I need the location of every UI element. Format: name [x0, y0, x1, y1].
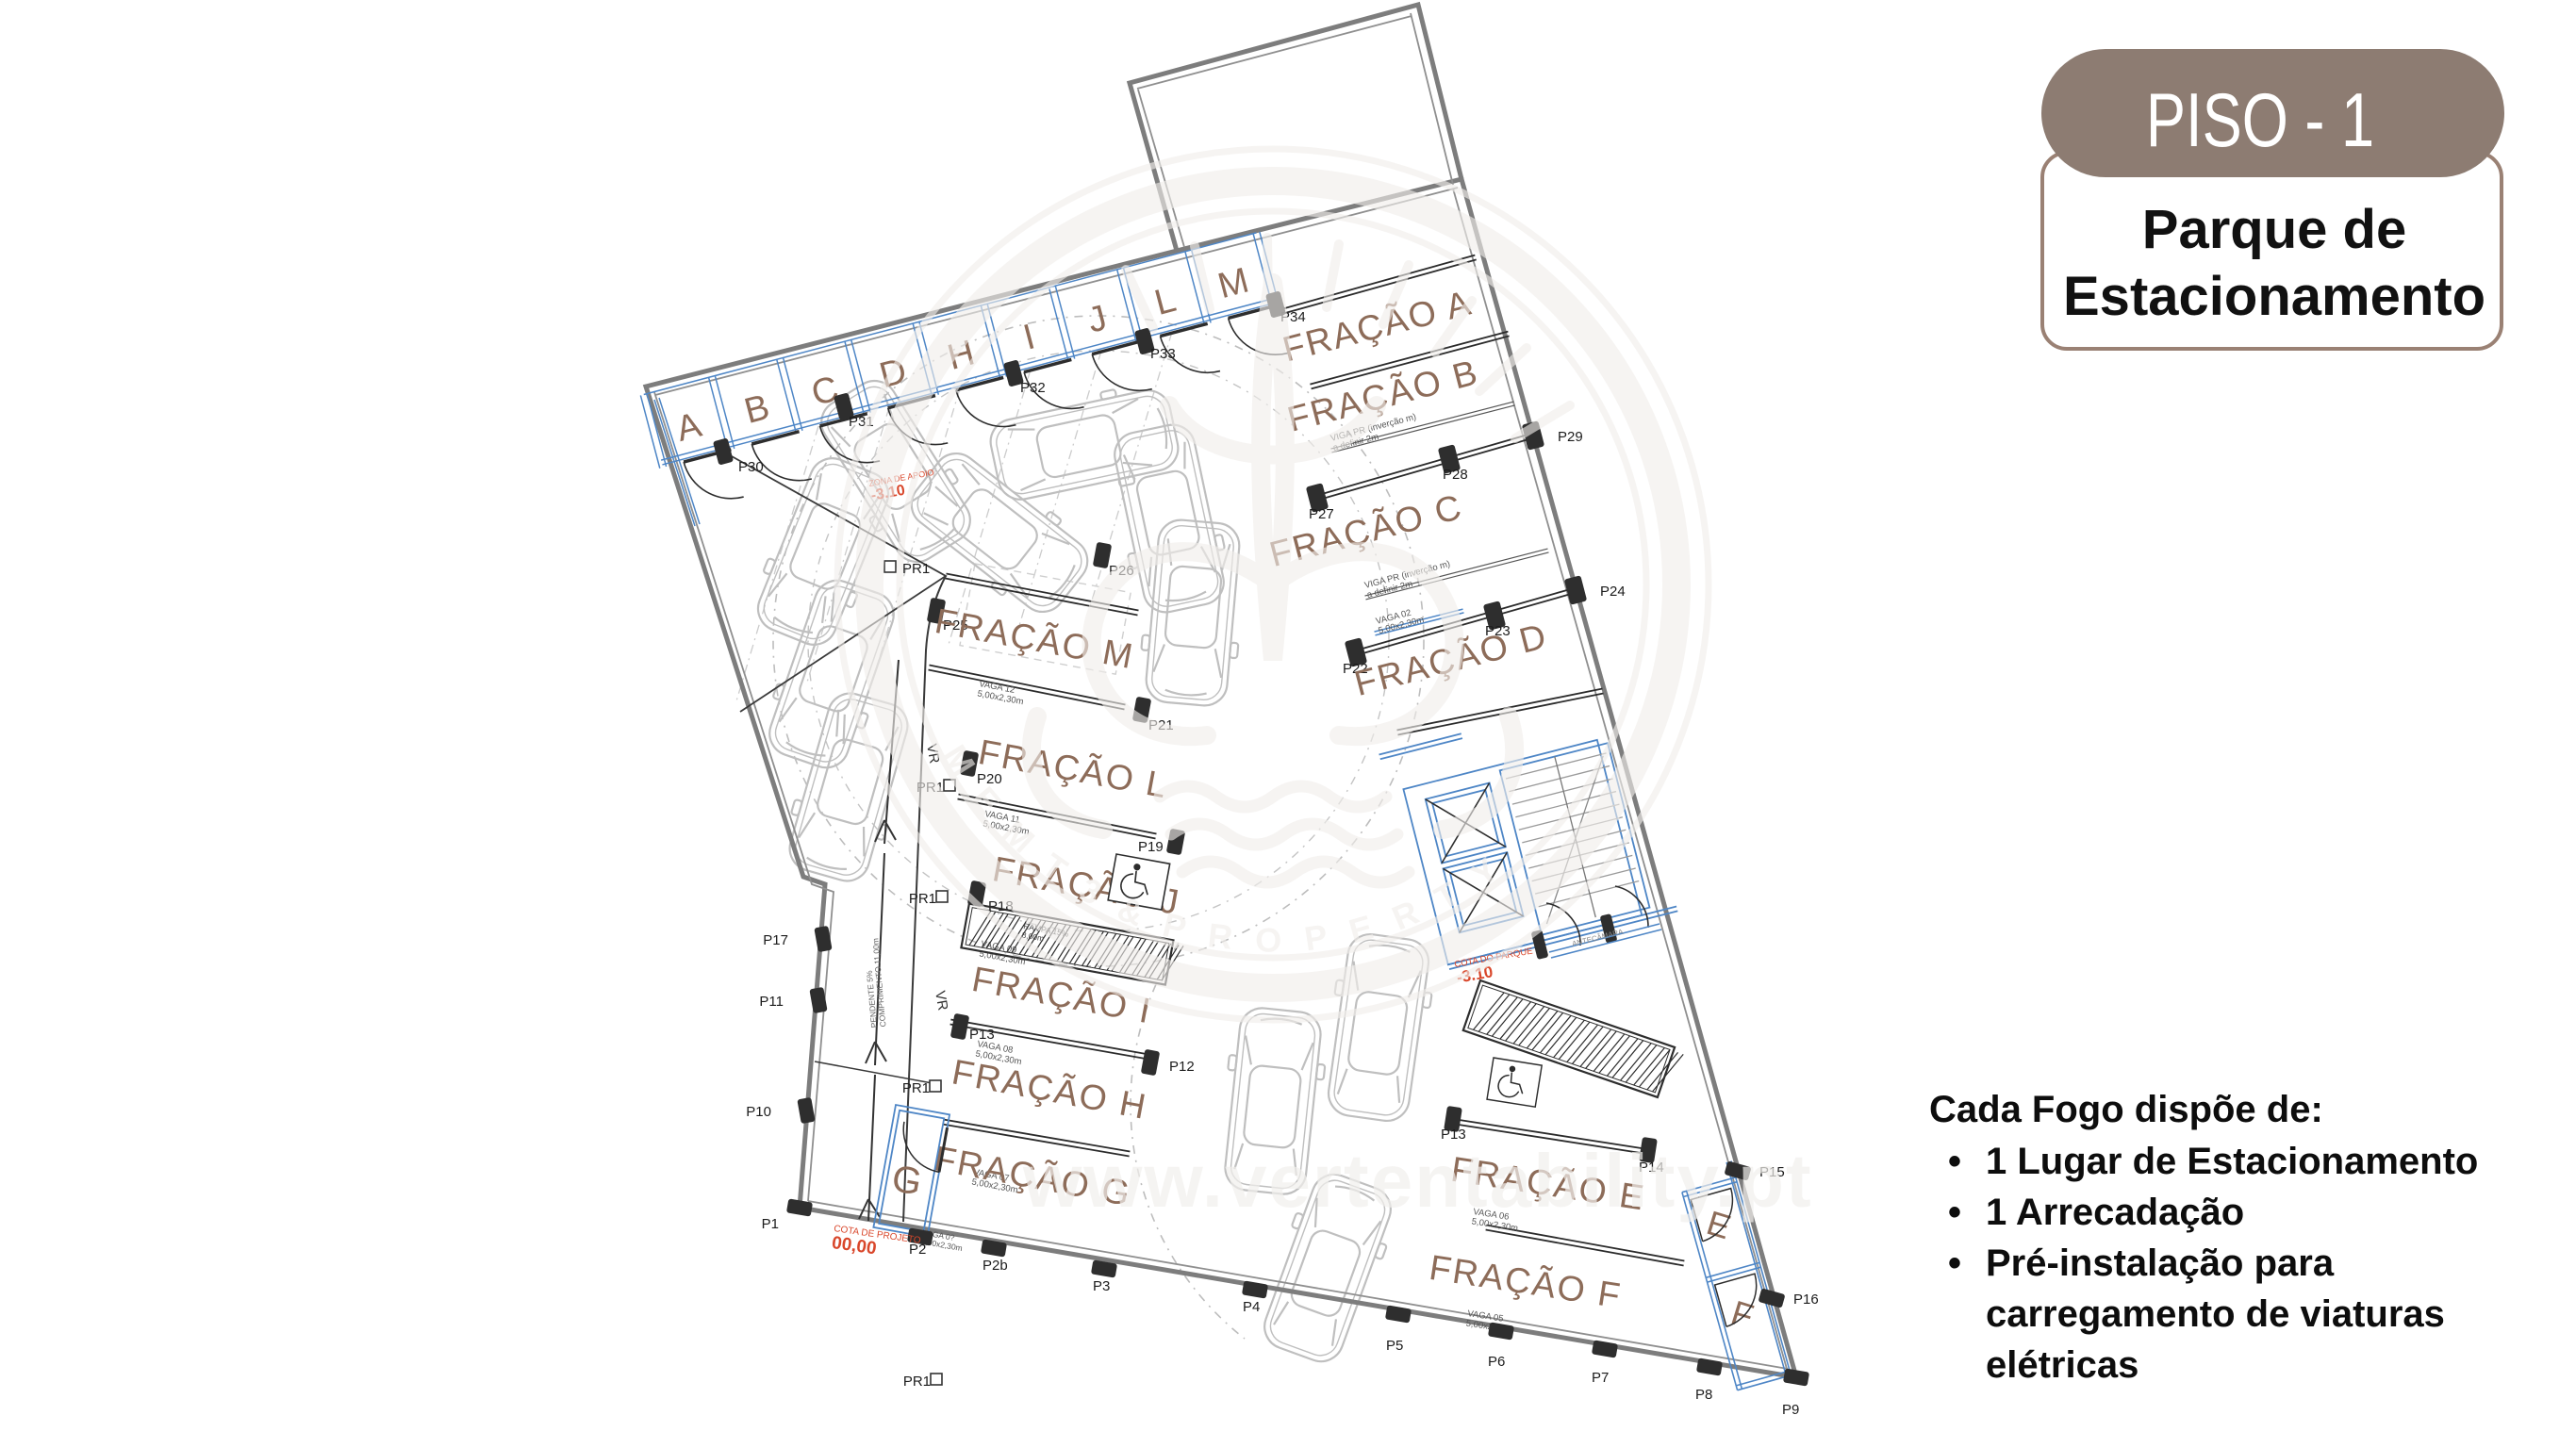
svg-text:VR: VR [932, 990, 950, 1012]
svg-text:P7: P7 [1592, 1370, 1609, 1386]
svg-text:•: • [1948, 1192, 1961, 1233]
svg-text:•: • [1948, 1141, 1961, 1182]
svg-text:PISO - 1: PISO - 1 [2146, 78, 2374, 163]
svg-text:1 Arrecadação: 1 Arrecadação [1986, 1192, 2244, 1233]
svg-text:P29: P29 [1558, 429, 1583, 445]
svg-text:PR1: PR1 [909, 891, 936, 907]
svg-text:Parque de: Parque de [2142, 199, 2406, 260]
svg-text:P4: P4 [1243, 1299, 1260, 1315]
svg-text:P16: P16 [1793, 1292, 1819, 1308]
svg-text:carregamento de viaturas: carregamento de viaturas [1986, 1293, 2445, 1335]
svg-text:P28: P28 [1443, 467, 1468, 483]
svg-text:P32: P32 [1020, 380, 1046, 396]
svg-text:P33: P33 [1150, 346, 1176, 362]
svg-text:PR1: PR1 [902, 561, 930, 577]
svg-text:P30: P30 [738, 459, 764, 475]
svg-text:www.vertentability.pt: www.vertentability.pt [1022, 1139, 1813, 1223]
svg-text:P1: P1 [762, 1216, 779, 1232]
svg-text:Estacionamento: Estacionamento [2063, 266, 2485, 327]
svg-text:P6: P6 [1488, 1354, 1505, 1370]
svg-text:P2b: P2b [983, 1258, 1008, 1274]
svg-text:P24: P24 [1600, 584, 1626, 600]
svg-text:P5: P5 [1386, 1338, 1403, 1354]
svg-text:•: • [1948, 1242, 1961, 1284]
svg-text:PR1: PR1 [902, 1080, 930, 1096]
svg-text:PR1: PR1 [903, 1374, 931, 1390]
svg-text:elétricas: elétricas [1986, 1344, 2138, 1386]
svg-text:P10: P10 [746, 1104, 771, 1120]
svg-text:P17: P17 [763, 932, 788, 948]
svg-text:P11: P11 [759, 994, 784, 1010]
svg-text:P3: P3 [1093, 1278, 1110, 1294]
svg-text:1 Lugar de Estacionamento: 1 Lugar de Estacionamento [1986, 1141, 2478, 1182]
svg-text:Pré-instalação para: Pré-instalação para [1986, 1242, 2335, 1284]
svg-text:P9: P9 [1782, 1402, 1799, 1418]
svg-text:Cada Fogo dispõe de:: Cada Fogo dispõe de: [1929, 1089, 2323, 1130]
svg-text:P8: P8 [1695, 1387, 1712, 1403]
svg-text:P12: P12 [1169, 1059, 1195, 1075]
svg-text:P19: P19 [1138, 839, 1164, 855]
